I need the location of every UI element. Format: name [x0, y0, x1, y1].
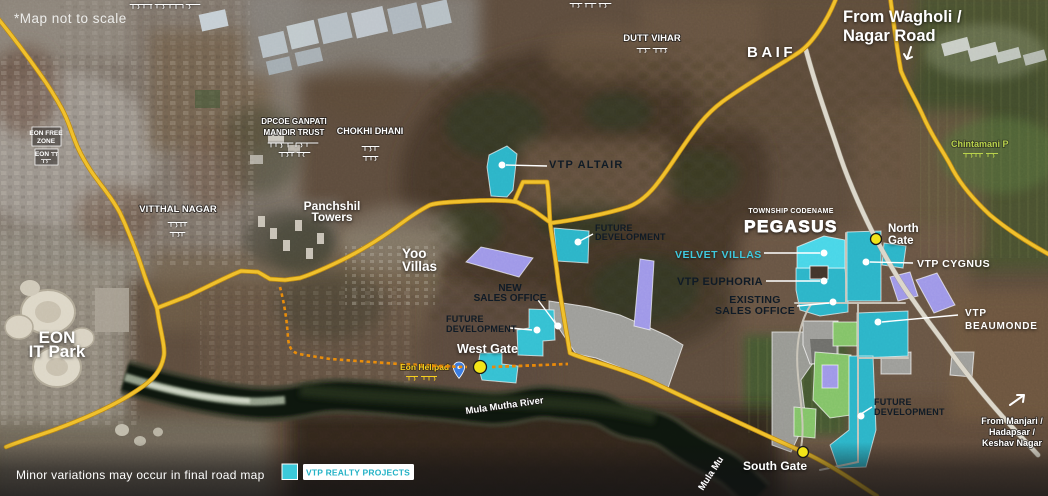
- svg-text:FUTURE: FUTURE: [874, 397, 912, 407]
- svg-text:Nagar Road: Nagar Road: [843, 27, 936, 45]
- svg-text:PEGASUS: PEGASUS: [744, 217, 838, 236]
- svg-text:DPCOE GANPATI: DPCOE GANPATI: [261, 117, 326, 126]
- svg-text:DEVELOPMENT: DEVELOPMENT: [874, 407, 945, 417]
- svg-text:From Wagholi /: From Wagholi /: [843, 8, 962, 26]
- svg-text:DEVELOPMENT: DEVELOPMENT: [595, 232, 666, 242]
- svg-text:SALES OFFICE: SALES OFFICE: [715, 305, 795, 317]
- svg-text:EON: EON: [35, 151, 49, 158]
- svg-text:Gate: Gate: [888, 235, 914, 247]
- svg-text:*Map not to scale: *Map not to scale: [14, 11, 127, 26]
- svg-text:VTP EUPHORIA: VTP EUPHORIA: [677, 276, 763, 288]
- svg-text:VELVET VILLAS: VELVET VILLAS: [675, 249, 762, 261]
- svg-text:CHOKHI DHANI: CHOKHI DHANI: [337, 126, 404, 136]
- svg-text:DUTT VIHAR: DUTT VIHAR: [623, 33, 681, 44]
- svg-text:MANDIR TRUST: MANDIR TRUST: [264, 128, 325, 137]
- svg-text:Keshav Nagar: Keshav Nagar: [982, 438, 1043, 448]
- svg-text:South Gate: South Gate: [743, 459, 807, 473]
- svg-text:Chintamani P: Chintamani P: [951, 139, 1009, 149]
- svg-text:FUTURE: FUTURE: [446, 314, 484, 324]
- svg-text:DEVELOPMENT: DEVELOPMENT: [446, 324, 517, 334]
- svg-text:Villas: Villas: [402, 259, 437, 274]
- svg-text:EON FREE: EON FREE: [29, 130, 63, 137]
- svg-text:VTP REALTY PROJECTS: VTP REALTY PROJECTS: [306, 468, 410, 478]
- svg-text:VTP ALTAIR: VTP ALTAIR: [549, 159, 624, 171]
- svg-text:VTP: VTP: [965, 308, 987, 319]
- svg-text:From Manjari /: From Manjari /: [981, 416, 1043, 426]
- svg-text:TOWNSHIP CODENAME: TOWNSHIP CODENAME: [748, 208, 833, 215]
- svg-text:West Gate: West Gate: [457, 342, 518, 356]
- svg-text:SALES OFFICE: SALES OFFICE: [474, 293, 547, 304]
- svg-text:VTP CYGNUS: VTP CYGNUS: [917, 258, 990, 270]
- svg-text:Towers: Towers: [311, 210, 352, 224]
- svg-text:BAIF: BAIF: [747, 44, 796, 61]
- svg-text:BEAUMONDE: BEAUMONDE: [965, 321, 1038, 332]
- svg-text:Minor variations may occur in: Minor variations may occur in final road…: [16, 468, 265, 482]
- svg-text:North: North: [888, 223, 919, 235]
- svg-text:ZONE: ZONE: [37, 138, 56, 145]
- svg-text:IT Park: IT Park: [29, 342, 86, 361]
- svg-text:Hadapsar /: Hadapsar /: [989, 427, 1036, 437]
- svg-text:VITTHAL NAGAR: VITTHAL NAGAR: [139, 204, 217, 215]
